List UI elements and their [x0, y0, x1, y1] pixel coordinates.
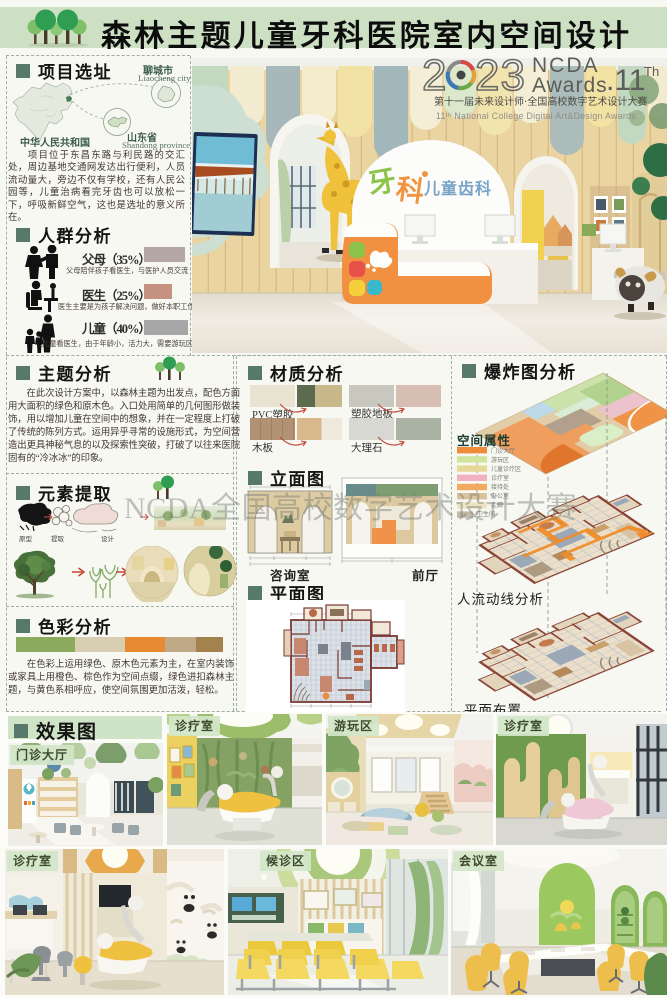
svg-text:11ᵗʰ National College Digital: 11ᵗʰ National College Digital Art&Design… [436, 111, 636, 121]
svg-text:诊疗室: 诊疗室 [491, 474, 509, 482]
svg-text:Th: Th [644, 64, 659, 79]
svg-text:23: 23 [475, 51, 526, 100]
svg-text:第十一届未来设计师·全国高校数字艺术设计大赛: 第十一届未来设计师·全国高校数字艺术设计大赛 [434, 95, 647, 108]
svg-text:游玩区: 游玩区 [491, 456, 509, 464]
svg-text:.11: .11 [606, 64, 645, 97]
svg-text:儿童齿科: 儿童齿科 [423, 179, 492, 198]
svg-text:儿童诊疗区: 儿童诊疗区 [491, 465, 521, 473]
svg-text:Awards: Awards [532, 74, 608, 97]
svg-text:科: 科 [394, 173, 426, 208]
svg-text:2: 2 [422, 51, 447, 100]
svg-text:牙: 牙 [366, 165, 399, 200]
svg-text:门诊大厅: 门诊大厅 [491, 447, 515, 455]
